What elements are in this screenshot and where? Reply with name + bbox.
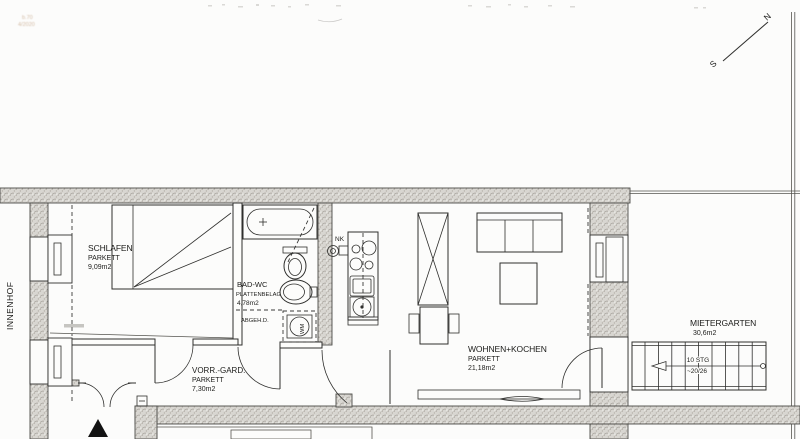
vorraum-name: VORR.-GARD. (192, 366, 245, 375)
stairs-steps-label: 10 STG (687, 357, 709, 364)
bad-ceiling-note: ABGEH.D. (241, 318, 269, 324)
bad-floor: PLATTENBELAG (236, 292, 281, 298)
mietergarten-area: 30,6m2 (693, 330, 716, 337)
wohnen-name: WOHNEN+KOCHEN (468, 344, 547, 354)
wall-south (135, 406, 800, 424)
door-opening-garden (590, 337, 628, 392)
floor-plan-canvas: b.70 4/2020 N S (0, 0, 800, 439)
mietergarten-name: MIETERGARTEN (690, 318, 756, 328)
vorraum-floor: PARKETT (192, 377, 224, 384)
wall-south-pier-left (135, 406, 157, 439)
window-west-2 (30, 338, 72, 386)
innenhof-label: INNENHOF (5, 282, 15, 330)
bad-name: BAD-WC (237, 280, 268, 289)
stairs-dimension-label: ~20/26 (687, 368, 707, 375)
schlafen-floor: PARKETT (88, 255, 120, 262)
nk-label: NK (335, 236, 345, 243)
bad-area: 4,78m2 (237, 300, 259, 307)
window-west-1 (30, 235, 72, 283)
window-east (590, 235, 628, 282)
floor-plan-page: b.70 4/2020 N S (0, 0, 800, 439)
wall-north (0, 188, 630, 203)
vorraum-area: 7,30m2 (192, 386, 215, 393)
wall-corridor-2 (193, 339, 238, 345)
schlafen-name: SCHLAFEN (88, 243, 133, 253)
schlafen-area: 9,09m2 (88, 264, 111, 271)
wohnen-area: 21,18m2 (468, 365, 495, 372)
wm-label: WM (300, 324, 306, 334)
stamp-line-1: b.70 (22, 15, 33, 21)
wohnen-floor: PARKETT (468, 356, 500, 363)
paper-background (0, 0, 800, 439)
stamp-line-2: 4/2020 (18, 22, 35, 28)
wall-bath-east-shaft (318, 203, 332, 345)
wall-corridor-3 (280, 342, 322, 348)
